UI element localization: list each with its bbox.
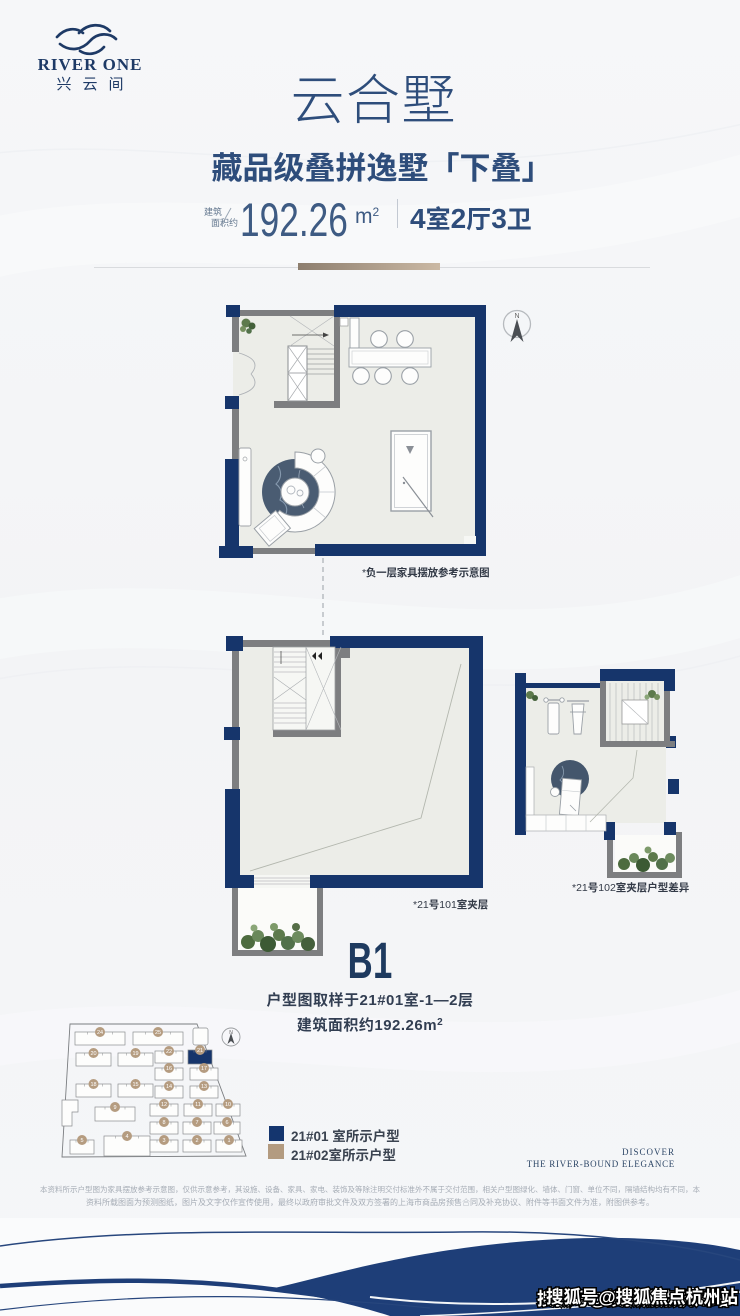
svg-text:25: 25: [155, 1030, 161, 1036]
svg-text:18: 18: [90, 1082, 96, 1088]
svg-text:5: 5: [80, 1138, 83, 1144]
svg-text:11: 11: [195, 1102, 201, 1108]
svg-text:19: 19: [132, 1051, 138, 1057]
svg-text:22: 22: [166, 1049, 172, 1055]
svg-text:4: 4: [125, 1134, 128, 1140]
svg-text:6: 6: [225, 1120, 228, 1126]
svg-text:7: 7: [195, 1120, 198, 1126]
svg-text:3: 3: [162, 1138, 165, 1144]
svg-text:20: 20: [90, 1051, 96, 1057]
svg-text:1: 1: [227, 1138, 230, 1144]
svg-text:2: 2: [195, 1138, 198, 1144]
svg-text:21: 21: [197, 1048, 203, 1054]
svg-text:8: 8: [162, 1120, 165, 1126]
svg-text:17: 17: [201, 1066, 207, 1072]
svg-text:9: 9: [113, 1105, 116, 1111]
svg-text:12: 12: [161, 1102, 167, 1108]
svg-text:24: 24: [97, 1030, 103, 1036]
svg-text:13: 13: [201, 1084, 207, 1090]
svg-text:10: 10: [225, 1102, 231, 1108]
svg-text:搜狐号@搜狐焦点杭州站: 搜狐号@搜狐焦点杭州站: [546, 1284, 738, 1309]
svg-text:15: 15: [132, 1082, 138, 1088]
svg-text:16: 16: [166, 1066, 172, 1072]
svg-text:14: 14: [166, 1084, 172, 1090]
